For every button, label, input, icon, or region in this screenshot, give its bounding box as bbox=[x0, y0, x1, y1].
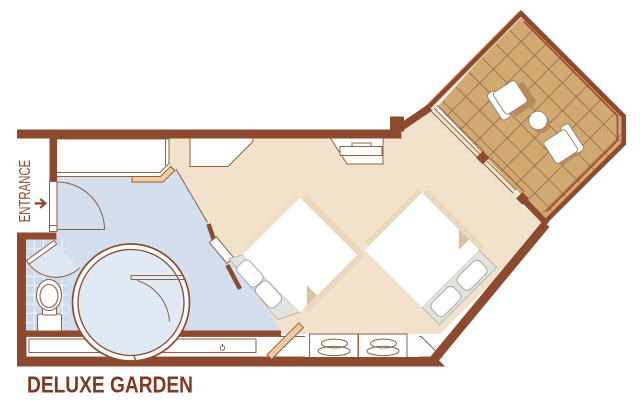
svg-text:DELUXE GARDEN: DELUXE GARDEN bbox=[27, 372, 193, 398]
svg-text:ENTRANCE: ENTRANCE bbox=[17, 160, 34, 223]
